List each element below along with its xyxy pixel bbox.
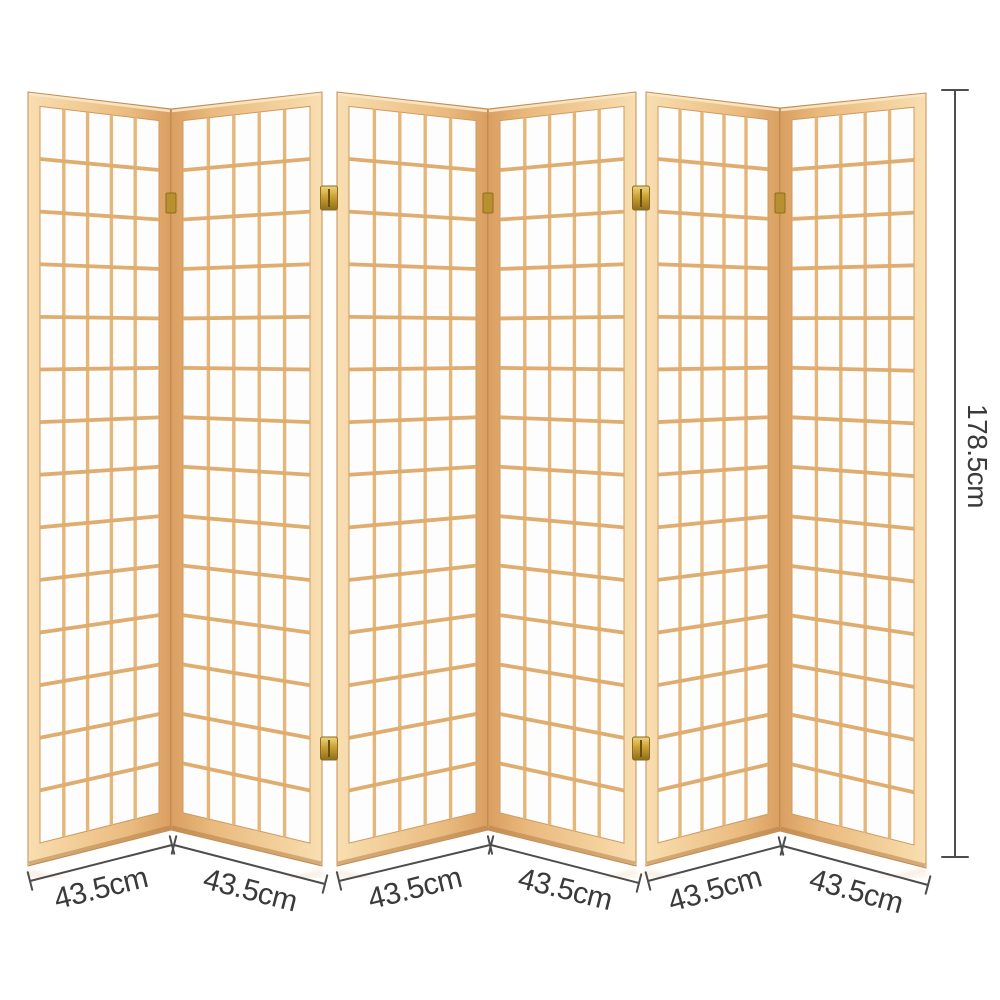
panels-group xyxy=(28,92,926,868)
divider-panels-graphic xyxy=(0,0,1000,1000)
panel-2 xyxy=(171,92,322,866)
room-divider-product-image: 43.5cm 43.5cm 43.5cm 43.5cm 43.5cm 43.5c… xyxy=(0,0,1000,1000)
screen-height-label: 178.5cm xyxy=(961,404,993,508)
panel-3 xyxy=(337,92,488,866)
floor-reflection xyxy=(28,868,926,1000)
panel-5 xyxy=(646,92,780,866)
panel-6 xyxy=(780,93,926,868)
brass-hinge xyxy=(483,193,493,213)
brass-hinge xyxy=(166,193,176,213)
panel-4 xyxy=(488,92,636,866)
panel-1 xyxy=(28,92,171,866)
brass-hinge xyxy=(775,193,785,213)
